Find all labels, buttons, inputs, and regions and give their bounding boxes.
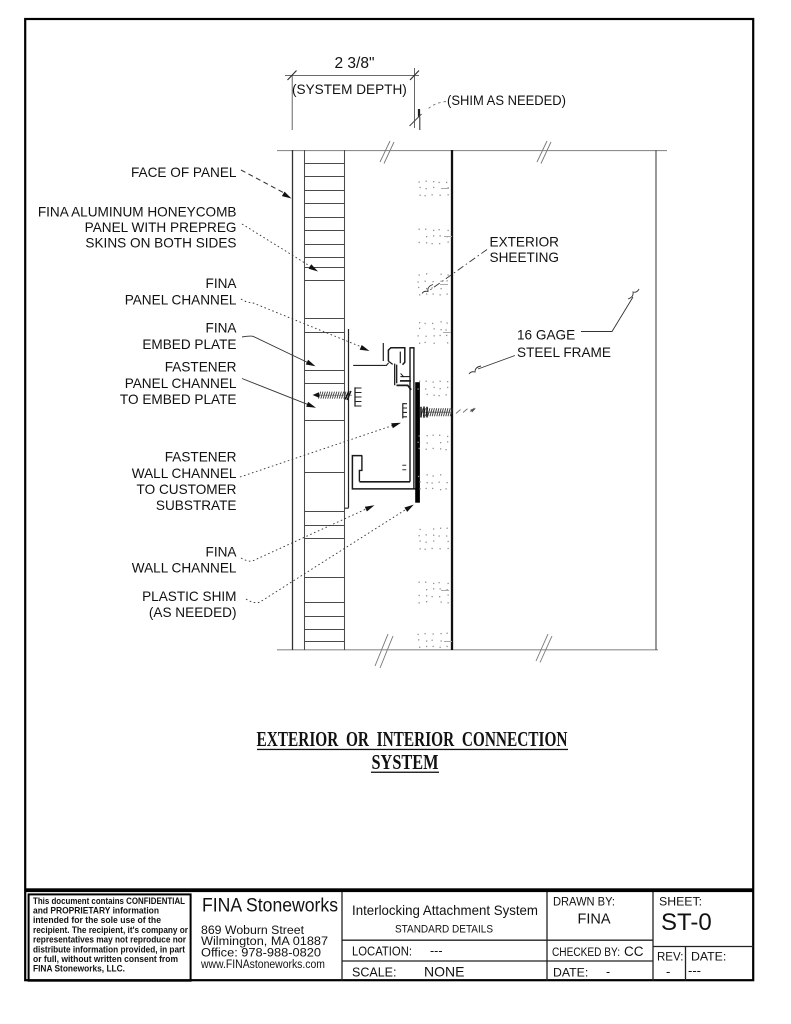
svg-text:-: - — [666, 964, 670, 979]
svg-text:-: - — [606, 965, 610, 979]
svg-text:FASTENER: FASTENER — [165, 360, 237, 375]
svg-text:PANEL CHANNEL: PANEL CHANNEL — [125, 376, 237, 391]
svg-text:---: --- — [430, 944, 443, 958]
svg-text:FINA ALUMINUM HONEYCOMB: FINA ALUMINUM HONEYCOMB — [38, 204, 237, 219]
svg-text:SCALE:: SCALE: — [352, 966, 396, 980]
svg-text:TO EMBED PLATE: TO EMBED PLATE — [120, 392, 237, 407]
svg-text:2 3/8": 2 3/8" — [335, 55, 375, 72]
svg-text:PANEL WITH PREPREG: PANEL WITH PREPREG — [85, 220, 237, 235]
svg-text:EMBED PLATE: EMBED PLATE — [142, 337, 236, 352]
svg-text:FINA Stoneworks: FINA Stoneworks — [202, 896, 338, 917]
svg-text:---: --- — [688, 963, 701, 978]
svg-text:STANDARD DETAILS: STANDARD DETAILS — [395, 924, 493, 936]
svg-text:DATE:: DATE: — [691, 950, 726, 964]
svg-text:16 GAGE: 16 GAGE — [517, 328, 575, 343]
svg-text:CHECKED BY:: CHECKED BY: — [552, 945, 620, 959]
svg-text:STEEL FRAME: STEEL FRAME — [517, 345, 611, 360]
svg-text:FASTENER: FASTENER — [165, 450, 237, 465]
svg-text:Interlocking Attachment System: Interlocking Attachment System — [352, 903, 538, 918]
svg-text:WALL CHANNEL: WALL CHANNEL — [132, 561, 237, 576]
svg-text:NONE: NONE — [424, 964, 464, 980]
svg-text:www.FINAstoneworks.com: www.FINAstoneworks.com — [200, 957, 325, 971]
svg-text:ST-0: ST-0 — [661, 909, 712, 936]
svg-text:TO CUSTOMER: TO CUSTOMER — [137, 482, 237, 497]
svg-text:REV:: REV: — [657, 952, 683, 964]
svg-text:FINA Stoneworks, LLC.: FINA Stoneworks, LLC. — [33, 963, 125, 974]
svg-text:WALL CHANNEL: WALL CHANNEL — [132, 466, 237, 481]
svg-text:(SHIM AS NEEDED): (SHIM AS NEEDED) — [447, 93, 566, 108]
svg-text:(AS NEEDED): (AS NEEDED) — [149, 605, 237, 620]
svg-text:DATE:: DATE: — [553, 966, 588, 980]
svg-text:PLASTIC SHIM: PLASTIC SHIM — [142, 589, 236, 604]
svg-text:FINA: FINA — [577, 912, 610, 928]
svg-text:EXTERIOR: EXTERIOR — [490, 235, 560, 250]
svg-text:PANEL CHANNEL: PANEL CHANNEL — [125, 292, 237, 307]
svg-text:SYSTEM: SYSTEM — [372, 750, 439, 774]
svg-text:FACE OF PANEL: FACE OF PANEL — [131, 165, 237, 180]
svg-text:FINA: FINA — [206, 545, 238, 560]
svg-text:EXTERIOR OR INTERIOR CONNEC: EXTERIOR OR INTERIOR CONNECTION — [257, 727, 568, 751]
svg-text:(SYSTEM DEPTH): (SYSTEM DEPTH) — [292, 82, 407, 97]
svg-text:CC: CC — [624, 944, 644, 959]
svg-text:SKINS ON BOTH SIDES: SKINS ON BOTH SIDES — [85, 236, 236, 251]
svg-text:SHEETING: SHEETING — [490, 250, 560, 265]
svg-text:SUBSTRATE: SUBSTRATE — [156, 498, 237, 513]
svg-text:DRAWN BY:: DRAWN BY: — [553, 895, 615, 909]
svg-text:LOCATION:: LOCATION: — [352, 945, 412, 959]
svg-text:FINA: FINA — [206, 276, 238, 291]
svg-text:FINA: FINA — [206, 321, 238, 336]
svg-text:SHEET:: SHEET: — [659, 895, 702, 909]
